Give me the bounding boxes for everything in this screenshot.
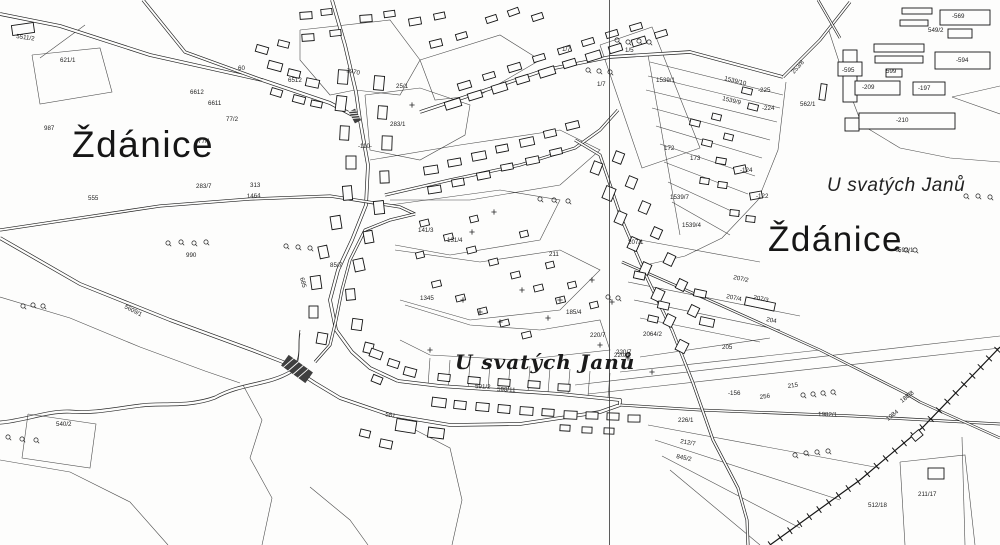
building — [302, 34, 314, 42]
parcel-boundary — [952, 97, 1000, 114]
cross-mark-icon — [545, 315, 550, 320]
building — [373, 201, 384, 215]
parcel-number-label: 5511/2 — [16, 33, 36, 43]
cross-mark-icon — [649, 369, 654, 374]
parcel-number-label: 220/3 — [614, 352, 630, 359]
building — [515, 74, 529, 84]
building — [940, 10, 990, 25]
parcel-number-label: 1464 — [247, 192, 262, 200]
building — [663, 253, 676, 267]
tree-icon — [630, 44, 632, 46]
building — [380, 171, 389, 183]
building — [451, 178, 464, 187]
building — [560, 425, 570, 432]
parcel-number-label: 212/7 — [680, 438, 697, 448]
building — [369, 348, 383, 360]
building — [387, 358, 400, 368]
parcel-number-label: 205 — [722, 344, 733, 351]
building — [701, 139, 712, 147]
building — [532, 53, 545, 62]
parcel-boundary — [900, 462, 905, 545]
building — [373, 76, 384, 91]
tree-icon — [538, 197, 542, 201]
tree-icon — [620, 300, 622, 302]
tree-icon — [626, 40, 630, 44]
building — [614, 211, 627, 226]
tree-icon — [913, 248, 917, 252]
building — [467, 90, 482, 101]
building — [581, 37, 594, 46]
tree-icon — [819, 454, 821, 456]
parcel-number-label: 549/2 — [928, 27, 944, 34]
tree-icon — [793, 453, 797, 457]
building — [379, 439, 392, 449]
tree-icon — [208, 244, 210, 246]
parcel-boundary — [652, 108, 770, 140]
building — [321, 8, 333, 15]
tree-icon — [811, 392, 815, 396]
parcel-boundary — [640, 338, 770, 357]
building — [359, 429, 370, 438]
building — [693, 289, 706, 298]
building — [711, 113, 721, 121]
parcel-number-label: -122 — [756, 193, 769, 200]
building — [309, 306, 318, 318]
building — [607, 413, 619, 420]
tree-icon — [801, 393, 805, 397]
cross-mark-icon — [469, 229, 474, 234]
parcel-boundary — [428, 358, 430, 386]
building — [629, 22, 642, 31]
parcel-number-label: 253/8 — [790, 59, 806, 76]
railway-layer — [770, 347, 1000, 545]
tree-icon — [10, 439, 12, 441]
building — [476, 402, 490, 411]
parcel-number-label: 581 — [385, 411, 397, 420]
building — [718, 181, 728, 188]
parcel-number-label: 185/4 — [566, 309, 582, 316]
building — [455, 32, 467, 41]
tree-icon — [308, 246, 312, 250]
tree-icon — [38, 442, 40, 444]
railway-ticks — [770, 347, 1000, 545]
building — [454, 400, 467, 409]
parcel-number-label: -224 — [762, 105, 775, 112]
tree-icon — [556, 202, 558, 204]
parcel-number-label: 173 — [690, 155, 701, 162]
building — [900, 20, 928, 26]
tree-icon — [34, 438, 38, 442]
building — [507, 7, 519, 16]
parcel-boundary — [0, 297, 240, 383]
road-casing — [330, 0, 398, 381]
tree-icon — [917, 252, 919, 254]
parcel-number-label: 1/7 — [597, 81, 606, 88]
building — [608, 43, 622, 53]
parcel-number-label: 598/11 — [497, 386, 516, 394]
building — [495, 144, 508, 153]
tree-icon — [616, 296, 620, 300]
building — [371, 374, 383, 384]
parcel-number-label: -197 — [918, 85, 931, 92]
building — [330, 215, 342, 229]
building — [528, 381, 540, 389]
building — [723, 133, 733, 141]
tree-icon — [647, 40, 651, 44]
tree-icon — [170, 245, 172, 247]
tree-icon — [284, 244, 288, 248]
tree-icon — [831, 390, 835, 394]
building — [457, 80, 471, 90]
parcel-number-label: 25/1 — [396, 83, 409, 90]
tree-icon — [542, 201, 544, 203]
building — [310, 275, 322, 289]
building — [382, 136, 392, 150]
building — [427, 427, 444, 439]
tree-icon — [830, 453, 832, 455]
tree-icon — [21, 304, 25, 308]
building — [875, 56, 923, 63]
tree-icon — [20, 437, 24, 441]
building — [408, 17, 421, 26]
parcel-number-label: -209 — [862, 84, 875, 91]
building — [353, 258, 365, 272]
building — [589, 301, 598, 309]
parcel-number-label: 226/1 — [678, 417, 694, 424]
parcel-boundary — [655, 440, 840, 500]
parcel-number-label: 621/1 — [60, 57, 76, 64]
building — [519, 230, 528, 238]
parcel-boundary — [243, 385, 272, 545]
parcel-number-label: 987 — [44, 125, 55, 132]
parcel-number-label: 1539/9 — [722, 95, 743, 107]
building — [747, 103, 758, 111]
tree-icon — [312, 250, 314, 252]
building — [928, 468, 944, 479]
tree-icon — [988, 195, 992, 199]
tree-icon — [300, 249, 302, 251]
building — [340, 126, 350, 140]
building — [948, 29, 972, 38]
parcel-number-label: 599 — [886, 68, 897, 75]
railway-line — [770, 347, 1000, 545]
building — [654, 29, 667, 38]
building — [582, 427, 592, 433]
parcel-number-label: 1/7 — [562, 46, 571, 53]
building — [471, 151, 486, 162]
cross-mark-icon — [427, 347, 432, 352]
building — [477, 307, 487, 315]
building — [545, 261, 554, 269]
building — [549, 148, 562, 157]
parcel-boundary — [648, 425, 880, 468]
building — [431, 280, 441, 288]
building — [586, 412, 598, 419]
building — [270, 88, 283, 98]
building — [277, 40, 289, 48]
building — [432, 397, 447, 408]
building — [363, 230, 374, 243]
tree-icon — [976, 194, 980, 198]
building — [507, 62, 521, 72]
building — [625, 176, 637, 190]
building — [565, 121, 579, 131]
tree-icon — [825, 395, 827, 397]
parcel-number-label: 2064/2 — [643, 331, 662, 338]
parcel-number-label: 540/2 — [56, 421, 72, 428]
tree-icon — [980, 198, 982, 200]
tree-icon — [615, 38, 619, 42]
tree-icon — [805, 397, 807, 399]
parcel-number-label: 60 — [238, 65, 245, 72]
building — [631, 36, 646, 47]
map-canvas: ŽdániceŽdániceU svatých JanůU svatých Ja… — [0, 0, 1000, 545]
parcel-number-label: -110- — [358, 143, 372, 150]
building — [638, 201, 651, 215]
tree-icon — [183, 244, 185, 246]
building — [605, 29, 618, 38]
building — [488, 258, 498, 266]
tree-icon — [41, 304, 45, 308]
parcel-boundary — [0, 460, 168, 545]
tree-icon — [992, 199, 994, 201]
parcel-number-label: 1345 — [420, 295, 434, 302]
building — [543, 129, 556, 139]
parcel-boundary — [40, 25, 85, 58]
building — [429, 39, 442, 49]
cross-mark-icon — [409, 102, 414, 107]
building — [657, 301, 669, 310]
parcel-number-label: -156 — [728, 390, 741, 397]
parcel-number-label: 256 — [759, 393, 771, 401]
building — [378, 106, 388, 120]
parcel-number-label: 283/7 — [196, 183, 212, 190]
building — [330, 29, 342, 36]
building — [455, 294, 465, 302]
building — [558, 384, 570, 392]
building — [700, 177, 710, 184]
building — [335, 95, 347, 111]
tree-icon — [597, 69, 601, 73]
building — [604, 428, 614, 434]
parcel-number-label: 215 — [787, 382, 799, 390]
road-casing — [575, 140, 748, 545]
building — [520, 407, 534, 416]
building — [419, 219, 429, 227]
parcel-number-label: 685 — [298, 277, 308, 289]
building — [911, 430, 923, 442]
building — [466, 246, 476, 254]
building — [525, 156, 539, 166]
tree-icon — [835, 394, 837, 396]
building — [510, 271, 520, 279]
tree-icon — [166, 241, 170, 245]
tree-icon — [288, 248, 290, 250]
parcel-number-label: 211 — [549, 251, 559, 258]
parcel-number-label: 1539/1 — [656, 77, 675, 84]
road-core — [620, 405, 1000, 424]
parcel-number-label: 1539/4 — [682, 222, 701, 229]
parcel-number-label: 990 — [186, 252, 197, 259]
parcel-number-label: 6612 — [190, 89, 204, 96]
parcel-number-label: 1982/1 — [818, 411, 838, 419]
road-core — [575, 140, 748, 545]
building — [444, 98, 462, 110]
parcel-number-label: 591/2 — [475, 383, 491, 391]
tree-icon — [552, 198, 556, 202]
building — [687, 305, 699, 318]
building — [384, 10, 396, 17]
building — [564, 411, 577, 420]
parcel-number-label: 141/3 — [418, 227, 434, 234]
building — [716, 157, 727, 165]
tree-icon — [821, 391, 825, 395]
cross-mark-icon — [491, 209, 496, 214]
cross-mark-icon — [519, 287, 524, 292]
place-label: Ždánice — [72, 124, 214, 165]
parcel-number-label: -210 — [896, 117, 909, 124]
building — [415, 251, 424, 259]
tree-icon — [601, 73, 603, 75]
building — [485, 14, 497, 23]
parcel-number-label: -595 — [842, 67, 855, 74]
parcel-number-label: 131/4 — [447, 237, 463, 244]
building — [874, 44, 924, 52]
parcel-number-label: 204 — [766, 316, 778, 325]
parcel-number-label: 555 — [88, 195, 99, 202]
parcel-number-label: 1984 — [885, 408, 901, 422]
building — [746, 216, 756, 223]
parcel-boundary — [952, 86, 1000, 97]
building — [305, 78, 319, 89]
building — [476, 171, 490, 180]
building — [292, 95, 305, 105]
building — [647, 315, 658, 323]
building — [521, 331, 531, 339]
cross-mark-icon — [609, 299, 614, 304]
parcel-number-label: 207/2 — [733, 274, 750, 284]
tree-icon — [968, 198, 970, 200]
building — [351, 318, 362, 330]
parcel-number-label: 1539/10 — [724, 75, 748, 87]
building — [741, 87, 752, 95]
tree-icon — [815, 396, 817, 398]
building — [567, 281, 576, 289]
cross-mark-icon — [589, 277, 594, 282]
parcel-number-label: 313 — [250, 182, 261, 189]
building — [542, 409, 554, 417]
building — [267, 60, 283, 71]
tree-icon — [570, 203, 572, 205]
parcel-number-label: 845/2 — [676, 453, 693, 463]
building — [360, 15, 372, 23]
building — [491, 82, 508, 94]
tree-icon — [586, 68, 590, 72]
parcel-number-label: 1539/7 — [670, 194, 689, 201]
building — [482, 71, 495, 80]
building — [699, 317, 714, 328]
building — [730, 210, 740, 217]
building — [533, 284, 543, 292]
road-casing — [0, 196, 415, 230]
tree-icon — [566, 199, 570, 203]
tree-icon — [6, 435, 10, 439]
building — [531, 12, 543, 21]
parcel-boundary — [662, 456, 800, 528]
building — [819, 84, 827, 101]
parcel-number-label: -225 — [758, 87, 771, 94]
tree-icon — [826, 449, 830, 453]
building — [845, 118, 859, 131]
tree-icon — [296, 245, 300, 249]
place-label: U svatých Janů — [827, 175, 965, 196]
parcel-number-label: 220/7 — [590, 332, 606, 339]
tree-icon — [192, 241, 196, 245]
building — [447, 158, 461, 167]
parcel-number-label: -124 — [740, 167, 753, 174]
tree-icon — [612, 74, 614, 76]
tree-icon — [179, 240, 183, 244]
tree-icon — [45, 308, 47, 310]
building — [628, 415, 640, 422]
cross-mark-icon — [597, 342, 602, 347]
building — [902, 8, 932, 14]
building — [519, 137, 534, 148]
building — [499, 319, 509, 327]
tree-icon — [204, 240, 208, 244]
place-label: Ždánice — [768, 220, 903, 259]
building — [438, 373, 451, 381]
building — [342, 186, 352, 201]
bridge-deck — [281, 355, 313, 383]
building — [469, 215, 478, 223]
cadastral-map: ŽdániceŽdániceU svatých JanůU svatých Ja… — [0, 0, 1000, 545]
tree-icon — [31, 303, 35, 307]
parcel-number-label: 6611 — [208, 100, 222, 107]
parcel-number-label: -569 — [952, 13, 965, 20]
parcel-number-label: 211/17 — [918, 491, 937, 498]
parcel-boundary — [400, 422, 462, 545]
stream-layer — [0, 330, 300, 424]
parcel-number-label: 562/1 — [800, 101, 816, 108]
building — [650, 227, 662, 240]
building — [346, 156, 356, 169]
place-label: U svatých Janů — [455, 350, 635, 374]
building — [612, 151, 624, 164]
building — [428, 185, 442, 194]
parcel-number-label: 512/18 — [868, 502, 887, 509]
tree-icon — [619, 42, 621, 44]
tree-icon — [815, 450, 819, 454]
building — [316, 332, 328, 345]
building — [501, 163, 514, 171]
parcel-boundary — [575, 336, 1000, 385]
parcel-boundary — [620, 350, 820, 372]
parcel-number-label: 77/1 — [198, 138, 211, 145]
tree-icon — [651, 44, 653, 46]
road-core — [330, 0, 398, 381]
building — [300, 12, 312, 20]
building — [255, 44, 268, 54]
parcel-number-label: -594 — [956, 57, 969, 64]
building — [395, 419, 417, 434]
tree-icon — [196, 245, 198, 247]
parcel-boundary — [640, 240, 760, 262]
building — [433, 12, 445, 20]
tree-icon — [25, 308, 27, 310]
parcel-number-label: 6512 — [288, 77, 302, 84]
parcel-boundary — [310, 487, 368, 545]
